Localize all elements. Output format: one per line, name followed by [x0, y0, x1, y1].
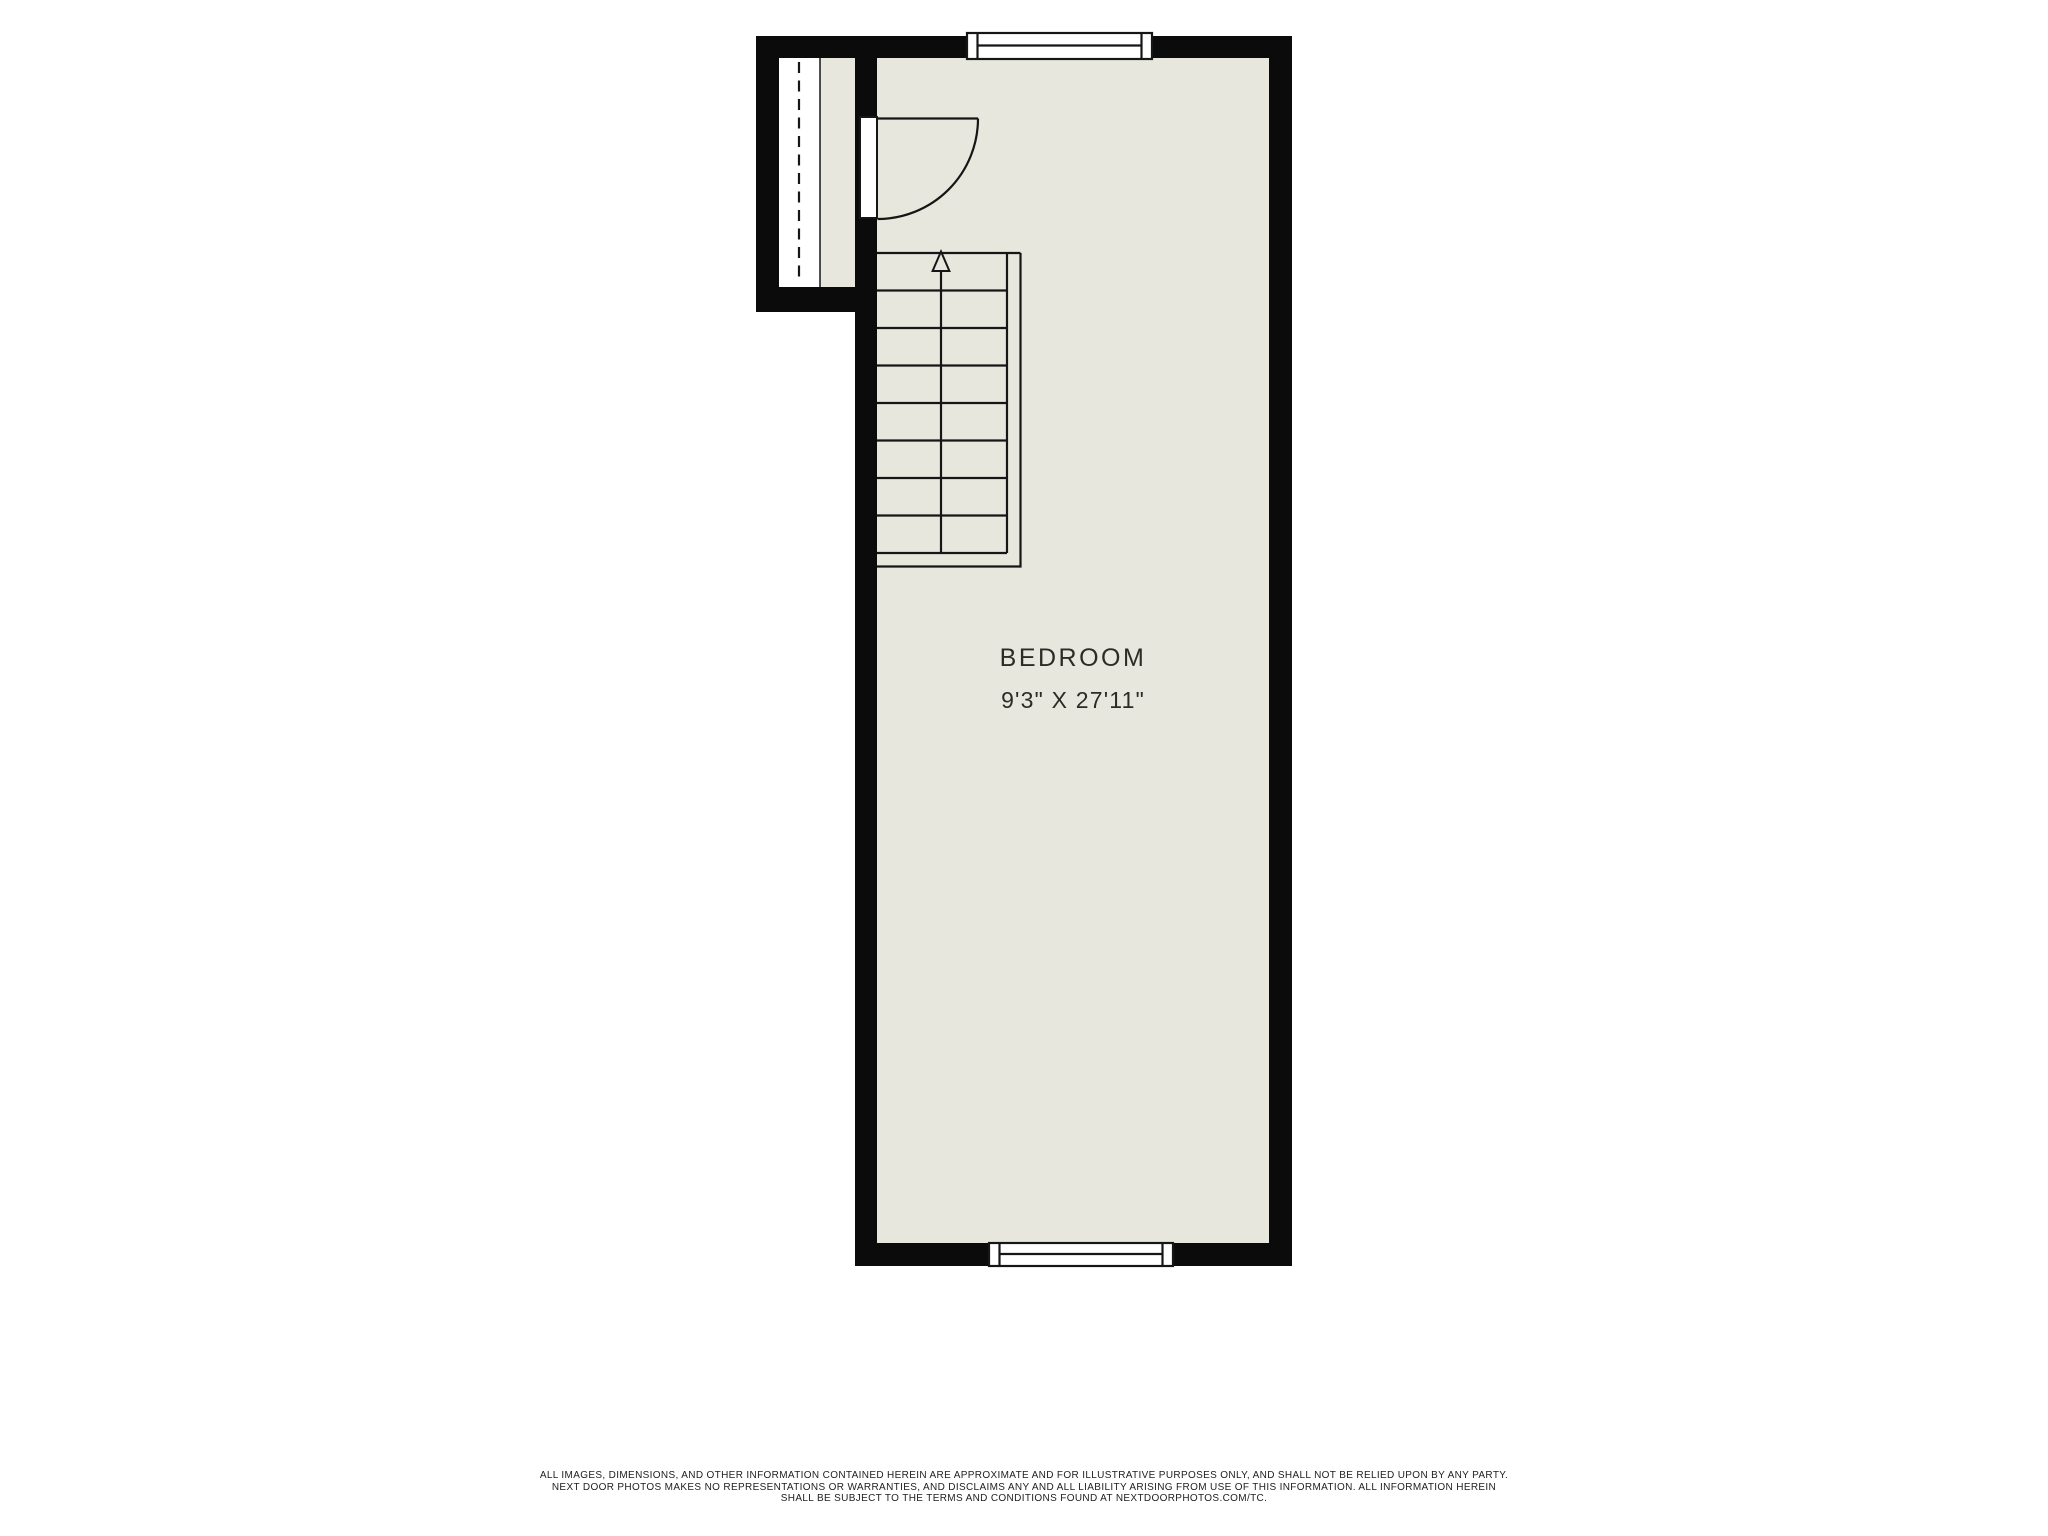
floor-plan-drawing [0, 0, 2048, 1536]
disclaimer: ALL IMAGES, DIMENSIONS, AND OTHER INFORM… [0, 1470, 2048, 1505]
window-top [967, 33, 1152, 59]
window-bottom [989, 1243, 1173, 1266]
room-label-block: BEDROOM 9'3" X 27'11" [877, 645, 1269, 713]
wall-left [855, 36, 877, 1266]
wall-right [1269, 36, 1292, 1266]
room-dimensions: 9'3" X 27'11" [877, 687, 1269, 713]
disclaimer-line: SHALL BE SUBJECT TO THE TERMS AND CONDIT… [0, 1493, 2048, 1505]
hall-floor-strip [820, 58, 855, 287]
door-opening [860, 117, 877, 218]
hall-wall-left [756, 36, 779, 312]
disclaimer-line: ALL IMAGES, DIMENSIONS, AND OTHER INFORM… [0, 1470, 2048, 1482]
floor-plan-page: BEDROOM 9'3" X 27'11" ALL IMAGES, DIMENS… [0, 0, 2048, 1536]
hall-wall-bottom [756, 287, 877, 312]
disclaimer-line: NEXT DOOR PHOTOS MAKES NO REPRESENTATION… [0, 1482, 2048, 1494]
room-label: BEDROOM [877, 645, 1269, 671]
